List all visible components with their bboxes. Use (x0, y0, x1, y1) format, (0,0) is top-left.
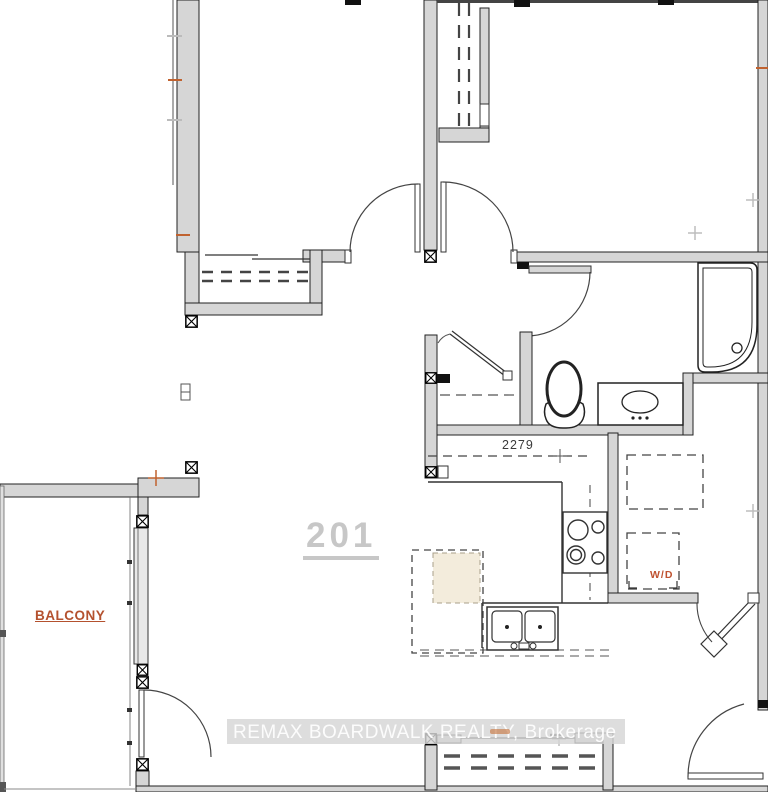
door-arc-bathroom (526, 272, 590, 336)
kitchen (412, 449, 610, 656)
toilet-icon (545, 362, 585, 428)
bedroom-right-closet (439, 3, 489, 142)
door-leaf-bedroom-left (415, 184, 420, 252)
floor-plan-drawing (0, 0, 768, 792)
door-leaf-bedroom-right (441, 182, 446, 252)
kitchen-sink-icon (487, 607, 558, 650)
door-leaf-entry (688, 773, 763, 779)
vanity-sink-icon (598, 383, 683, 425)
door-arc-bedroom-right (443, 182, 513, 252)
dimension-label: 2279 (502, 439, 534, 452)
balcony-label: BALCONY (35, 609, 105, 623)
door-arc-entry (688, 704, 744, 777)
watermark-text: REMAX BOARDWALK REALTY, Brokerage (233, 723, 617, 742)
cooktop-icon (563, 512, 607, 573)
laundry-closet (608, 433, 759, 657)
kitchen-island (412, 550, 483, 653)
floor-plan: 201 BALCONY 2279 W/D REMAX BOARDWALK REA… (0, 0, 768, 792)
balcony (0, 486, 211, 792)
unit-number-label: 201 (303, 518, 379, 560)
entry (425, 704, 763, 790)
door-leaf-balcony (139, 690, 144, 757)
door-arc-balcony (144, 690, 211, 757)
watermark: REMAX BOARDWALK REALTY, Brokerage (227, 719, 625, 744)
washer-dryer-label: W/D (650, 570, 673, 581)
door-arc-bedroom-left (350, 184, 418, 252)
watermark-artifact (490, 729, 510, 734)
bathroom (425, 262, 768, 478)
bathtub-icon (698, 263, 757, 372)
laundry-door (697, 593, 759, 657)
door-leaf-bathroom (529, 266, 591, 273)
linen-closet (438, 331, 517, 395)
bedroom-left-closet (202, 255, 310, 281)
column-markers (137, 251, 436, 770)
